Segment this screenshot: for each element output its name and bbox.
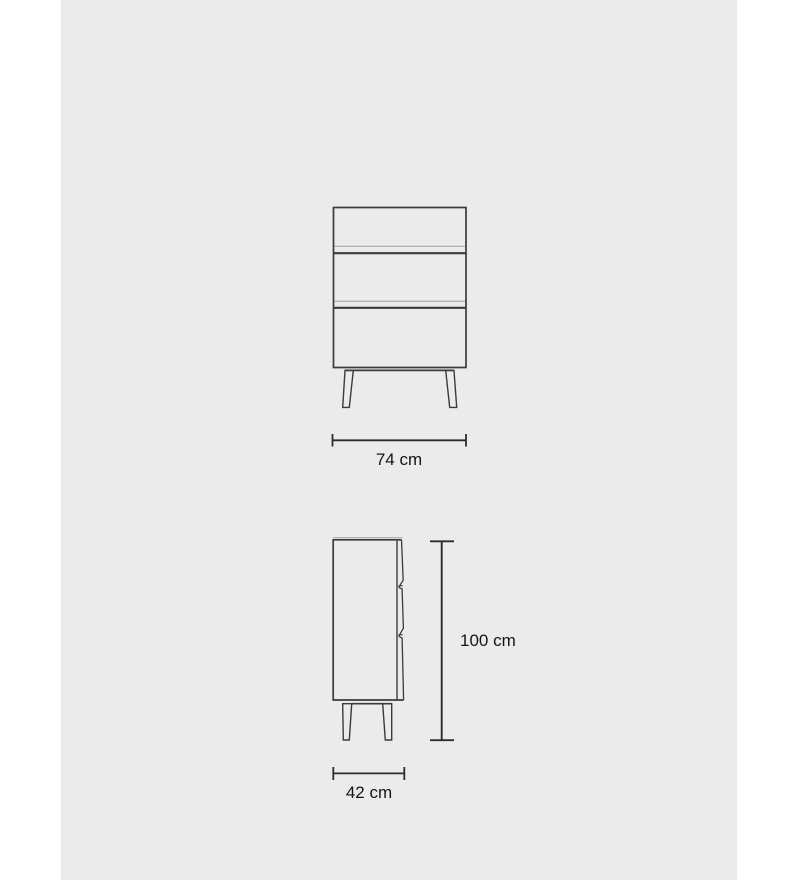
width-dimension — [333, 434, 467, 447]
product-dimension-diagram: 74 cm 100 cm 42 cm — [0, 0, 800, 880]
front-leg-left — [343, 370, 354, 407]
depth-dimension — [333, 767, 404, 780]
front-body-outline — [334, 208, 467, 368]
side-view-drawing — [333, 540, 403, 740]
height-dimension — [430, 541, 454, 740]
front-view-light-lines — [335, 246, 466, 301]
front-view-drawing — [334, 208, 467, 408]
furniture-line-drawing — [61, 0, 737, 880]
side-drawer-front-1 — [399, 540, 404, 588]
side-leg-left — [343, 704, 352, 740]
width-dimension-label: 74 cm — [376, 450, 422, 470]
side-drawer-front-2 — [399, 587, 404, 636]
depth-dimension-label: 42 cm — [346, 783, 392, 803]
side-drawer-front-3 — [399, 636, 404, 700]
front-leg-right — [446, 370, 457, 407]
diagram-panel: 74 cm 100 cm 42 cm — [61, 0, 737, 880]
height-dimension-label: 100 cm — [460, 631, 516, 651]
side-leg-right — [383, 704, 392, 740]
side-body-outline — [333, 540, 403, 700]
